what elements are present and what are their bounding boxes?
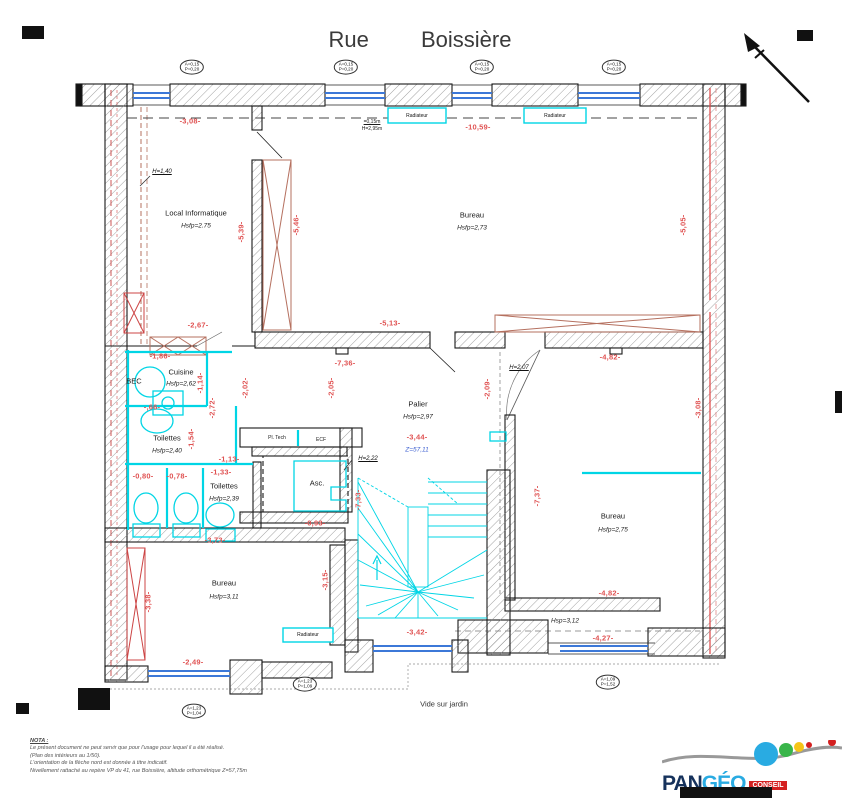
- dim: -3,08-: [180, 117, 201, 126]
- room-pl-tech: Pl. Tech: [268, 435, 286, 441]
- room-asc: Asc.: [310, 479, 325, 488]
- dim: -1,33-: [211, 468, 232, 477]
- dim: -2,49-: [183, 658, 204, 667]
- logo-swoosh-icon: [662, 740, 842, 772]
- marker-line: P=0,20: [607, 67, 621, 72]
- floor-plan-sheet: Rue Boissière Local Informatique Hsfp=2.…: [0, 0, 842, 800]
- structural-x-boxes: [150, 160, 700, 355]
- notes-block: NOTA : Le présent document ne peut servi…: [30, 738, 340, 775]
- street-title: Rue Boissière: [329, 27, 512, 53]
- room-palier-height: Hsfp=2,97: [403, 414, 433, 421]
- dim: -2,02-: [241, 378, 250, 399]
- annotation-h295: H=2,95m: [362, 126, 382, 132]
- radiator-boxes: [283, 108, 586, 642]
- room-bureau-right-height: Hsfp=2,75: [598, 527, 628, 534]
- room-bureau-top-height: Hsfp=2,73: [457, 225, 487, 232]
- notes-line: (Plan des intérieurs au 1/50).: [30, 753, 340, 760]
- label-bec: BEC: [126, 377, 141, 386]
- notes-line: L'orientation de la flèche nord est donn…: [30, 760, 340, 767]
- window-marker: A=0,15 P=0,20: [470, 60, 494, 75]
- annotation-h222: H=2,22: [358, 456, 378, 462]
- room-toilettes-2-height: Hsfp=2,39: [209, 496, 239, 503]
- dim: -2,09-: [483, 379, 492, 400]
- marker-line: P=1,09: [298, 684, 312, 689]
- palier-level: -3,44-: [407, 433, 428, 442]
- dim: -1,14-: [196, 373, 205, 394]
- radiator-label: Radiateur: [544, 113, 566, 119]
- dim: -2,05-: [327, 378, 336, 399]
- dim: -4,27-: [593, 634, 614, 643]
- annotation-h207: H=2,07: [509, 365, 529, 371]
- notes-title: NOTA :: [30, 738, 340, 745]
- annotation-allege: =0,15m: [364, 119, 381, 125]
- marker-line: P=1,52: [601, 682, 615, 687]
- dim: -7,37-: [533, 486, 542, 507]
- dim: -7,33-: [354, 490, 363, 511]
- marker-line: P=1,04: [187, 711, 201, 716]
- radiator-label: Radiateur: [297, 632, 319, 638]
- dim: -3,42-: [407, 628, 428, 637]
- dim: -,66-: [144, 403, 160, 412]
- zone-sud-height: Hsp=3,12: [551, 618, 579, 625]
- vide-sur-jardin: Vide sur jardin: [420, 700, 468, 709]
- dim: -5,39-: [237, 222, 246, 243]
- dim: -3,73-: [205, 536, 226, 545]
- dim: -4,82-: [600, 353, 621, 362]
- window-marker: A=1,09 P=1,52: [596, 675, 620, 690]
- notes-line: Le présent document ne peut servir que p…: [30, 745, 340, 752]
- dim: -3,08-: [694, 398, 703, 419]
- dim: -2,67-: [188, 321, 209, 330]
- window-marker: A=0,15 P=0,20: [602, 60, 626, 75]
- dim: -5,46-: [292, 215, 301, 236]
- notes-line: Nivellement rattaché au repère VP du 41,…: [30, 768, 340, 775]
- dim: -3,38-: [144, 592, 153, 613]
- marker-line: P=0,20: [475, 67, 489, 72]
- dim: -1,54-: [187, 429, 196, 450]
- room-bureau-bottom-height: Hsfp=3,11: [209, 594, 238, 601]
- dim: -2,72-: [208, 398, 217, 419]
- dim: -5,05-: [679, 215, 688, 236]
- north-arrow-icon: [744, 33, 809, 102]
- bottom-windows: [148, 643, 655, 676]
- window-marker: A=0,15 P=0,20: [180, 60, 204, 75]
- window-marker: A=1,23 P=1,04: [182, 704, 206, 719]
- room-toilettes-1-height: Hsfp=2,40: [152, 448, 182, 455]
- room-toilettes-2: Toilettes: [210, 482, 238, 491]
- room-cuisine-height: Hsfp=2,62: [166, 381, 196, 388]
- marker-line: P=0,20: [185, 67, 199, 72]
- annotation-h140: H=1,40: [152, 169, 172, 175]
- marker-line: P=0,20: [339, 67, 353, 72]
- dim: -7,36-: [335, 359, 356, 368]
- dim: -10,59-: [465, 123, 490, 132]
- window-marker: A=0,15 P=0,20: [334, 60, 358, 75]
- dim: -0,80-: [133, 472, 154, 481]
- dim: -0,78-: [167, 472, 188, 481]
- room-local-informatique-height: Hsfp=2.75: [181, 223, 211, 230]
- room-bureau-bottom: Bureau: [212, 579, 236, 588]
- palier-z-value: Z=57,11: [405, 447, 429, 454]
- staircase: [358, 478, 487, 618]
- dim: -0,93-: [305, 519, 326, 528]
- dim: -3,15-: [321, 570, 330, 591]
- radiator-label: Radiateur: [406, 113, 428, 119]
- room-toilettes-1: Toilettes: [153, 434, 181, 443]
- room-cuisine: Cuisine: [168, 368, 193, 377]
- scan-artifact-bar: [680, 787, 772, 798]
- dim: -1,13-: [219, 455, 240, 464]
- room-local-informatique: Local Informatique: [165, 209, 227, 218]
- dim: -4,82-: [599, 589, 620, 598]
- room-palier: Palier: [408, 400, 427, 409]
- room-bureau-top: Bureau: [460, 211, 484, 220]
- room-bureau-right: Bureau: [601, 512, 625, 521]
- dim: -1,86-: [150, 352, 171, 361]
- window-marker: A=1,23 P=1,09: [293, 677, 317, 692]
- room-ecf: ECF: [316, 437, 326, 443]
- dim: -5,13-: [380, 319, 401, 328]
